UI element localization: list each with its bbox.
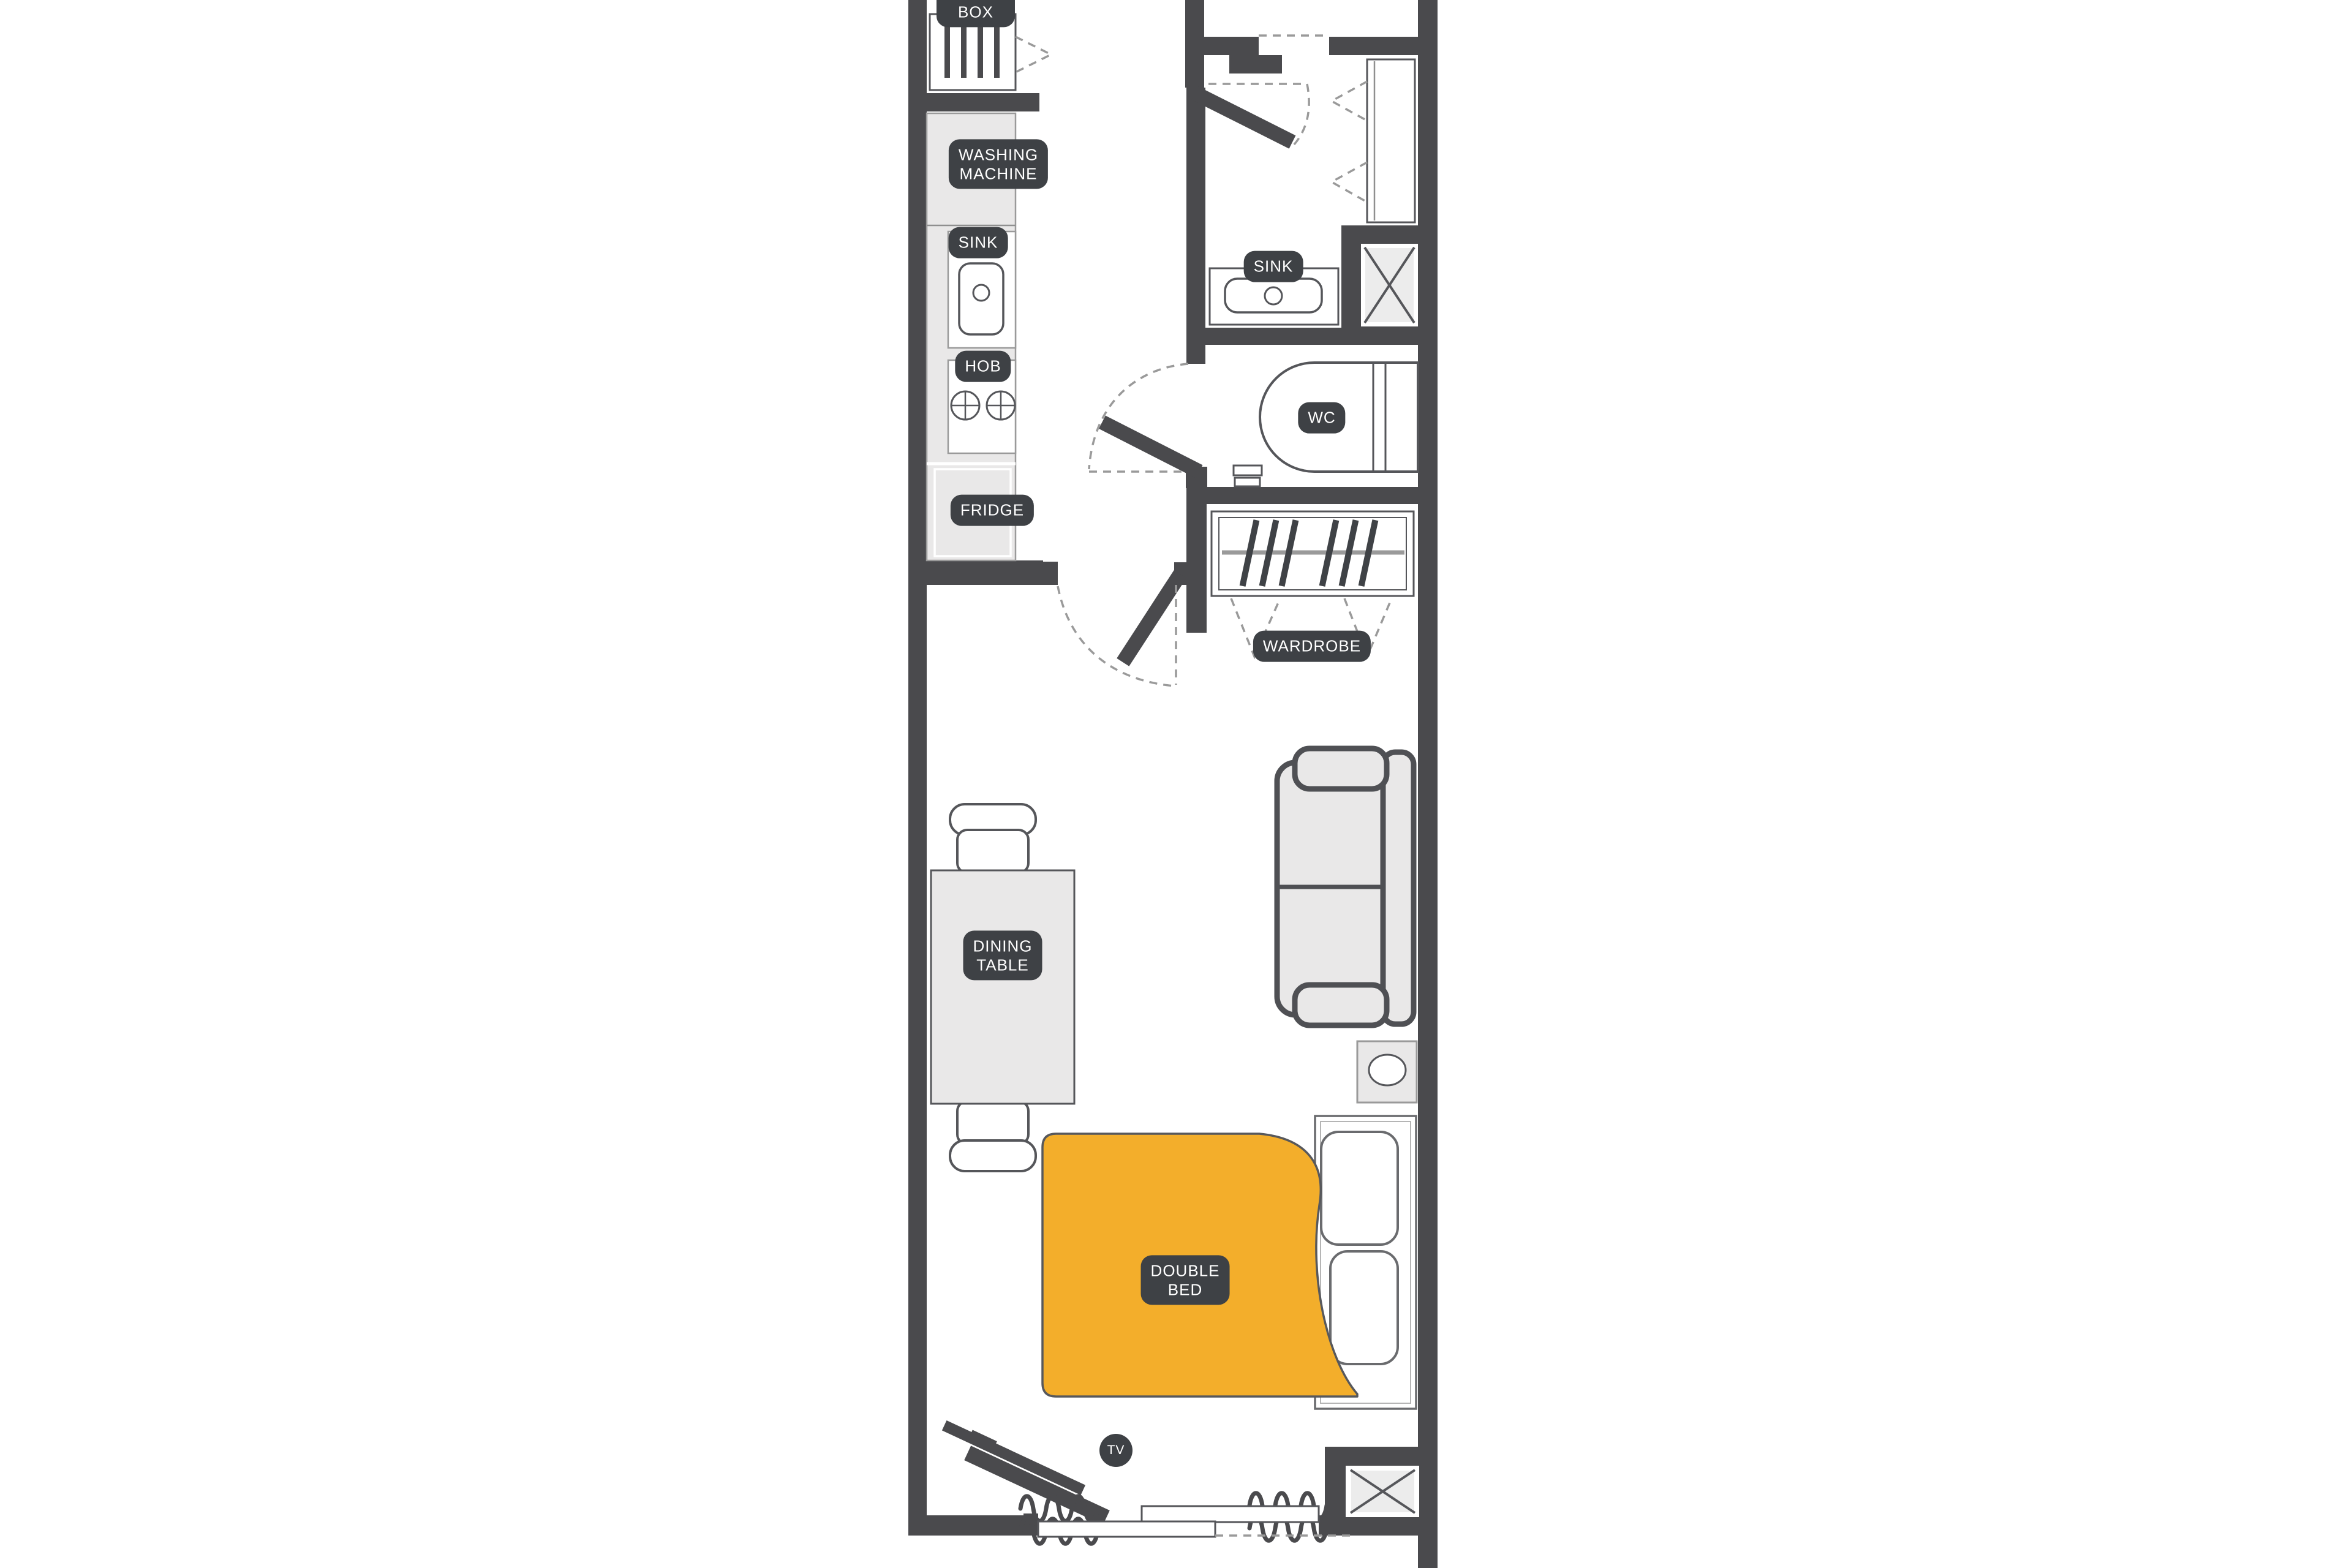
label-dining-table: DINING TABLE <box>963 930 1042 980</box>
wall-top-step <box>1229 55 1282 73</box>
label-tv: TV <box>1099 1434 1133 1467</box>
wall-corridor-lower <box>1186 488 1207 633</box>
label-bath-sink: SINK <box>1244 251 1303 282</box>
hob-burner-left <box>951 391 979 420</box>
window-pane-upper <box>1142 1506 1319 1522</box>
label-double-bed: DOUBLE BED <box>1141 1255 1230 1305</box>
label-shoes-box: SHOES BOX <box>937 0 1015 28</box>
window-pane-lower <box>1038 1521 1215 1537</box>
tv-screen-bar <box>942 1420 1085 1495</box>
bed-pillow-bottom <box>1330 1251 1398 1364</box>
dining-table <box>931 870 1074 1104</box>
floor-plan-drawing <box>0 0 2352 1568</box>
bath-sink-faucet <box>1265 287 1282 304</box>
wall-kitchen-bottom <box>908 560 1043 585</box>
bathroom-door-leaf <box>1099 415 1202 478</box>
shoes-box-bar-2 <box>961 26 967 78</box>
shoes-box-bar-4 <box>994 26 1000 78</box>
label-fridge: FRIDGE <box>951 495 1034 526</box>
kitchen-sink-drain <box>973 285 989 301</box>
dining-chair-bottom-back <box>950 1140 1036 1171</box>
shoes-box-bar-3 <box>978 26 983 78</box>
sofa-armrest-top <box>1295 748 1387 789</box>
shoes-box-bar-1 <box>944 26 950 78</box>
wall-top-c <box>1329 37 1418 55</box>
wall-below-shoesbox <box>908 93 1039 111</box>
nightstand-lamp <box>1369 1055 1406 1085</box>
sofa-back <box>1383 752 1414 1024</box>
hob-burner-right <box>987 391 1015 420</box>
entry-door-leaf <box>1192 86 1296 148</box>
wall-top-a <box>1204 37 1259 55</box>
wall-sink-wc-divider <box>1194 328 1341 345</box>
toilet-paper-holder-bottom <box>1235 478 1260 486</box>
toilet-paper-holder-top <box>1234 466 1262 475</box>
dining-chair-bottom-seat <box>957 1101 1028 1144</box>
shoes-box-open-indicator <box>1016 37 1051 72</box>
dining-chair-top-seat <box>957 830 1028 873</box>
bed-pillow-top <box>1321 1132 1398 1245</box>
sofa-zone <box>1277 748 1414 1025</box>
label-washing-machine: WASHING MACHINE <box>949 139 1048 189</box>
entry-cabinet-open-1 <box>1332 81 1367 121</box>
label-hob: HOB <box>955 351 1011 382</box>
wall-bathroom-bottom <box>1205 487 1438 504</box>
wall-kitchen-bottom-stub <box>1043 562 1058 585</box>
label-kitchen-sink: SINK <box>949 227 1008 258</box>
wall-corridor-upper <box>1186 88 1205 364</box>
entry-cabinet-open-2 <box>1332 162 1367 202</box>
dining-zone <box>931 804 1074 1171</box>
label-wc: WC <box>1298 402 1345 434</box>
living-door <box>1058 570 1186 686</box>
label-wardrobe: WARDROBE <box>1253 631 1371 662</box>
wall-left-outer <box>908 0 927 1536</box>
wall-entry-left-column <box>1185 0 1204 88</box>
floor-plan-page: SHOES BOX WASHING MACHINE SINK HOB FRIDG… <box>0 0 2352 1568</box>
tv-stand-bar <box>964 1445 1110 1525</box>
sofa-armrest-bottom <box>1295 985 1387 1025</box>
